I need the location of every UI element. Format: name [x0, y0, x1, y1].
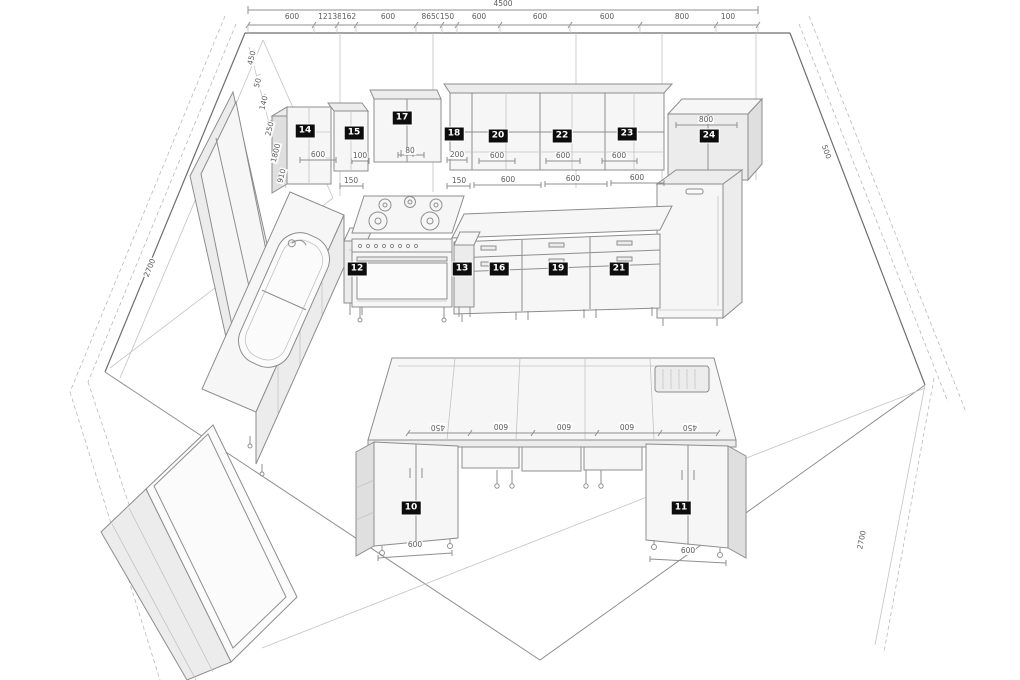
dimension-label: 910: [276, 167, 288, 185]
dimension-label: 500: [819, 143, 832, 161]
dimension-label: 250: [264, 120, 276, 138]
cabinet-badge-17: 17: [393, 112, 412, 125]
dimension-label: 600: [599, 13, 615, 21]
dimension-label: 600: [471, 13, 487, 21]
dimension-label: 600: [619, 422, 635, 430]
dimension-label: 450: [682, 423, 698, 431]
dimension-label: 600: [380, 13, 396, 21]
dimension-label: 4500: [492, 0, 513, 8]
dimension-label: 600: [500, 176, 516, 184]
cabinet-badge-11: 11: [672, 502, 691, 515]
cabinet-badge-18: 18: [445, 128, 464, 141]
cabinet-badge-16: 16: [490, 263, 509, 276]
kitchen-3d-drawing: 1011121314151617181920212223244500600121…: [0, 0, 1020, 680]
dimension-label: 600: [629, 174, 645, 182]
dimension-label: 800: [698, 116, 714, 124]
cabinet-badge-19: 19: [549, 263, 568, 276]
dimension-label: 600: [565, 175, 581, 183]
dimension-label: 600: [555, 152, 571, 160]
dimension-label: 450: [246, 49, 258, 67]
labels-overlay: 1011121314151617181920212223244500600121…: [0, 0, 1020, 680]
dimension-label: 150: [451, 177, 467, 185]
dimension-label: 600: [407, 541, 423, 549]
dimension-label: 150: [343, 177, 359, 185]
dimension-label: 600: [611, 152, 627, 160]
dimension-label: 100: [720, 13, 736, 21]
dimension-label: 450: [430, 423, 446, 431]
dimension-label: 162: [341, 13, 357, 21]
dimension-label: 600: [310, 151, 326, 159]
cabinet-badge-20: 20: [489, 130, 508, 143]
cabinet-badge-13: 13: [453, 263, 472, 276]
dimension-label: 100: [352, 152, 368, 160]
dimension-label: 1800: [270, 142, 283, 164]
cabinet-badge-10: 10: [402, 502, 421, 515]
cabinet-badge-14: 14: [296, 125, 315, 138]
dimension-label: 80: [404, 147, 416, 155]
dimension-label: 800: [674, 13, 690, 21]
dimension-label: 600: [556, 422, 572, 430]
dimension-label: 600: [493, 422, 509, 430]
dimension-label: 2700: [142, 257, 157, 280]
dimension-label: 200: [449, 151, 465, 159]
dimension-label: 150: [439, 13, 455, 21]
dimension-label: 600: [489, 152, 505, 160]
dimension-label: 12138: [317, 13, 343, 21]
dimension-label: 600: [532, 13, 548, 21]
dimension-label: 2700: [856, 529, 868, 551]
dimension-label: 140: [258, 94, 270, 112]
cabinet-badge-15: 15: [345, 127, 364, 140]
cabinet-badge-22: 22: [553, 130, 572, 143]
dimension-label: 50: [253, 76, 264, 89]
cabinet-badge-21: 21: [610, 263, 629, 276]
cabinet-badge-12: 12: [348, 263, 367, 276]
dimension-label: 600: [284, 13, 300, 21]
dimension-label: 600: [680, 547, 696, 555]
cabinet-badge-24: 24: [700, 130, 719, 143]
cabinet-badge-23: 23: [618, 128, 637, 141]
